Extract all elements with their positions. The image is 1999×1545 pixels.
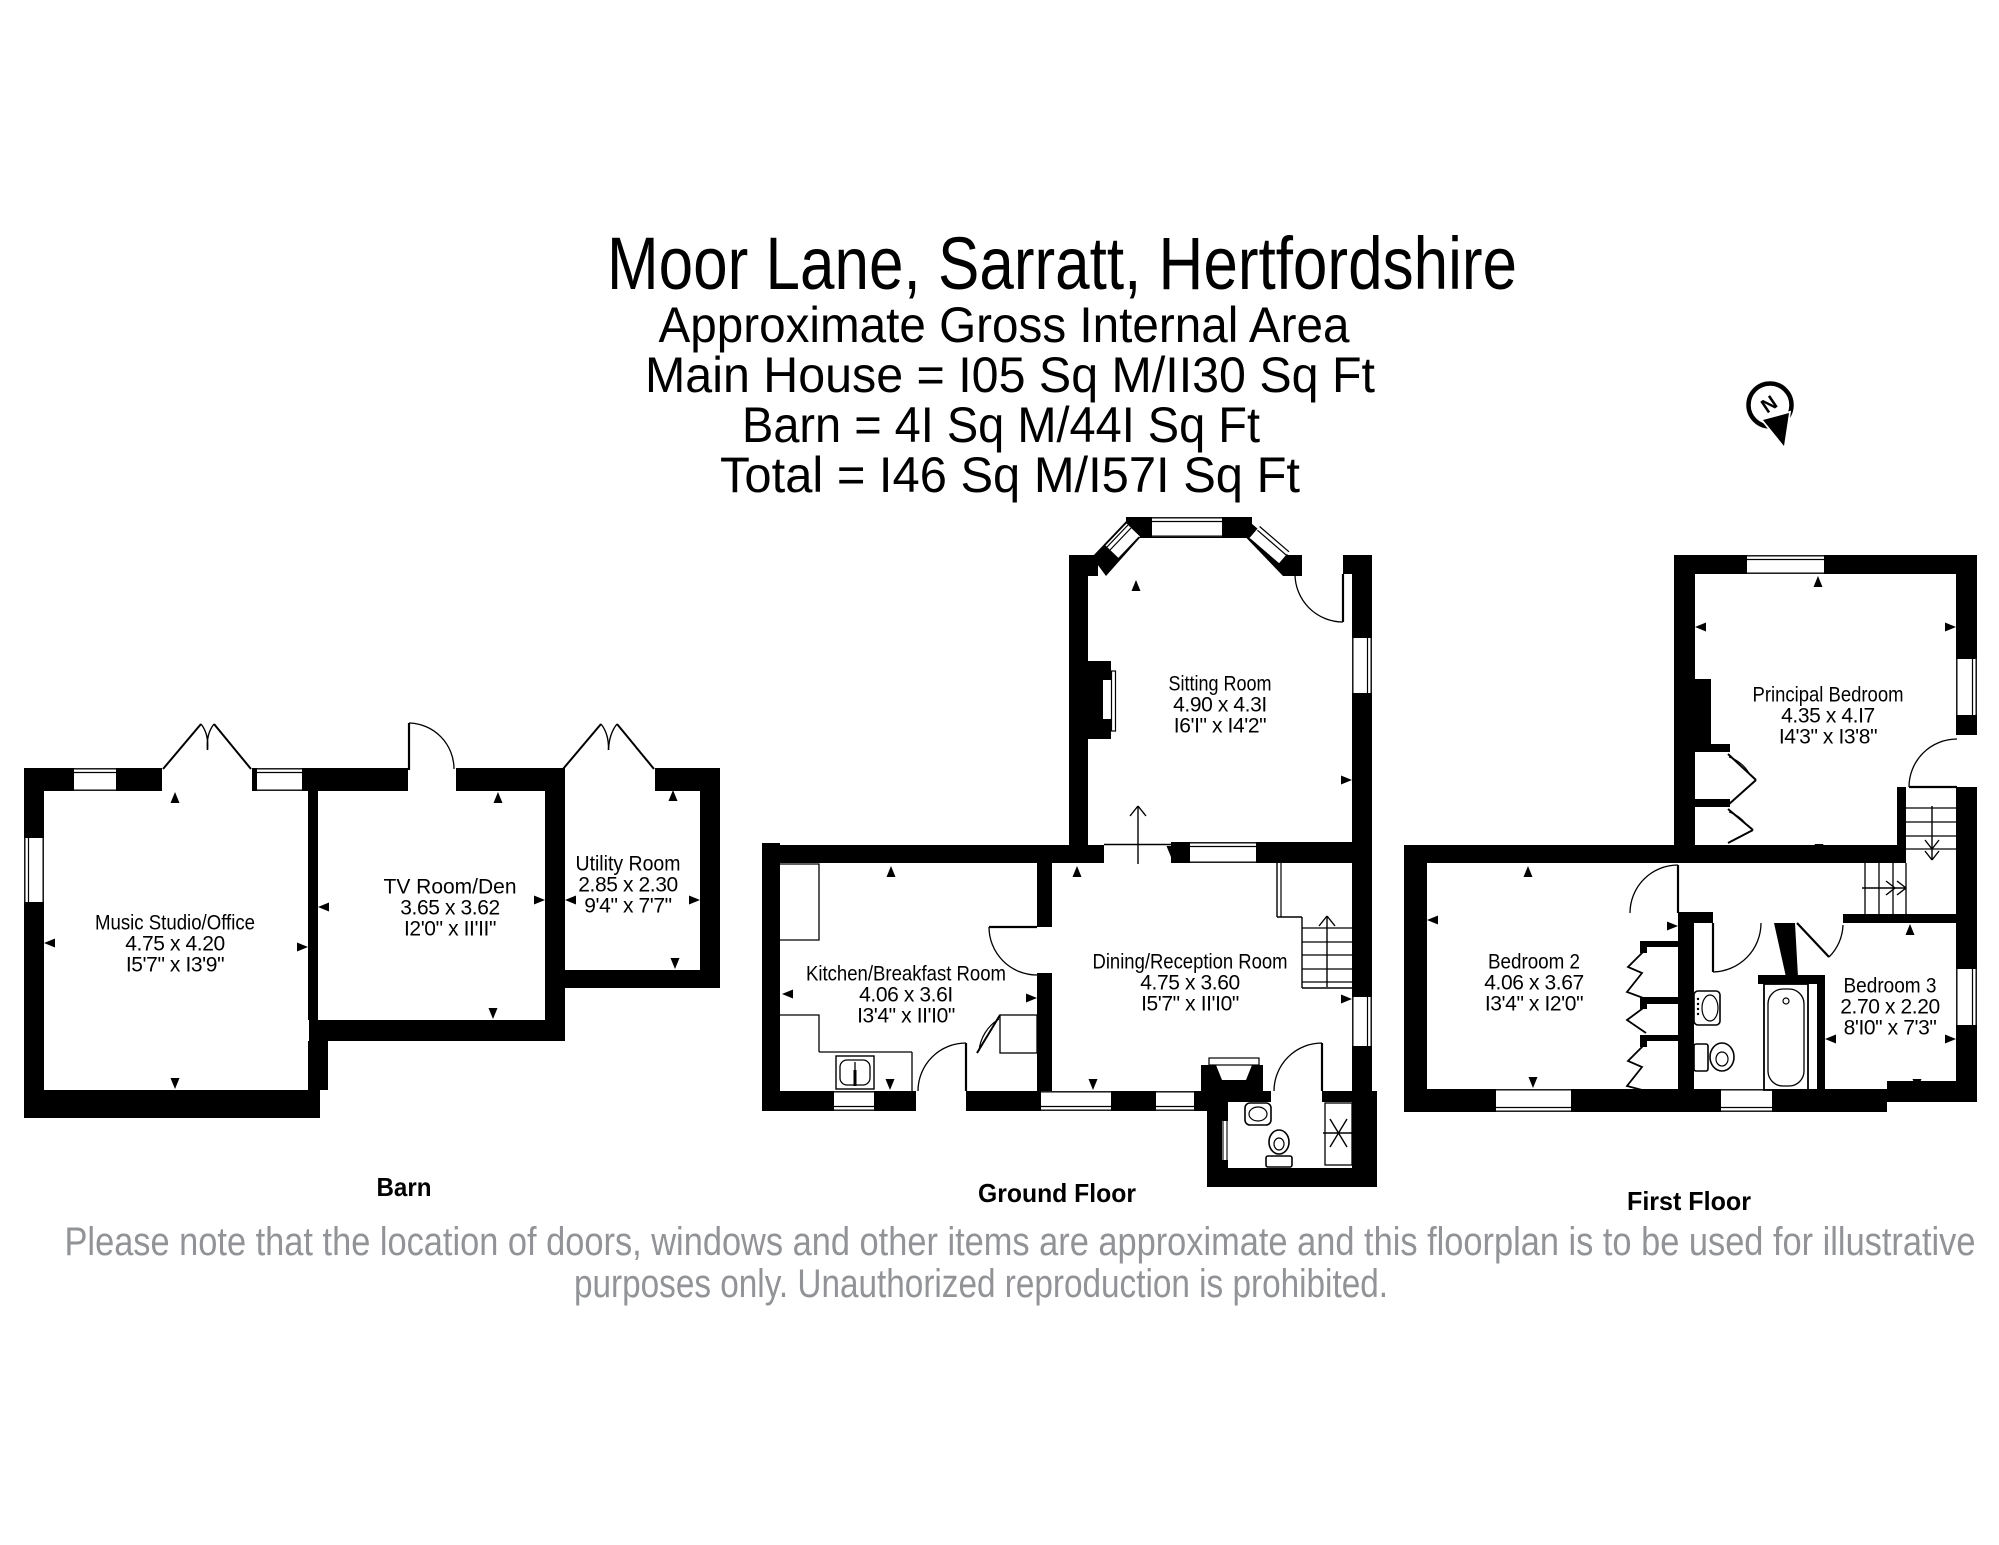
svg-text:3.65 x 3.62: 3.65 x 3.62	[400, 896, 500, 919]
svg-text:2.70 x 2.20: 2.70 x 2.20	[1840, 995, 1940, 1018]
svg-text:Utility Room: Utility Room	[576, 852, 681, 875]
svg-text:4.90 x 4.3I: 4.90 x 4.3I	[1173, 693, 1267, 716]
svg-text:Please note that the location: Please note that the location of doors, …	[65, 1220, 1976, 1264]
svg-text:Moor Lane, Sarratt, Hertfordsh: Moor Lane, Sarratt, Hertfordshire	[607, 222, 1517, 305]
svg-text:Main House = I05 Sq M/II30 Sq: Main House = I05 Sq M/II30 Sq Ft	[645, 347, 1375, 403]
svg-text:Barn: Barn	[377, 1172, 432, 1202]
svg-text:purposes only. Unauthorized re: purposes only. Unauthorized reproduction…	[574, 1262, 1388, 1306]
svg-text:Sitting Room: Sitting Room	[1169, 672, 1272, 695]
svg-text:4.75 x 4.20: 4.75 x 4.20	[125, 932, 225, 955]
svg-text:I6'I" x I4'2": I6'I" x I4'2"	[1174, 714, 1266, 737]
svg-text:Dining/Reception Room: Dining/Reception Room	[1093, 950, 1288, 973]
svg-text:4.06 x 3.67: 4.06 x 3.67	[1484, 971, 1584, 994]
svg-text:I3'4" x I2'0": I3'4" x I2'0"	[1485, 992, 1583, 1015]
svg-text:I5'7" x II'I0": I5'7" x II'I0"	[1141, 992, 1239, 1015]
svg-text:Approximate Gross Internal Are: Approximate Gross Internal Area	[659, 297, 1350, 353]
svg-text:4.06 x 3.6I: 4.06 x 3.6I	[859, 983, 953, 1006]
svg-text:4.75 x 3.60: 4.75 x 3.60	[1140, 971, 1240, 994]
svg-text:Bedroom 3: Bedroom 3	[1844, 974, 1937, 997]
svg-text:Kitchen/Breakfast Room: Kitchen/Breakfast Room	[806, 962, 1006, 985]
svg-text:I2'0" x II'II": I2'0" x II'II"	[404, 917, 496, 940]
svg-text:TV Room/Den: TV Room/Den	[384, 875, 517, 898]
svg-text:Ground Floor: Ground Floor	[978, 1178, 1136, 1208]
svg-text:First Floor: First Floor	[1627, 1186, 1751, 1216]
svg-text:9'4" x 7'7": 9'4" x 7'7"	[584, 894, 671, 917]
svg-text:Barn = 4I Sq M/44I Sq Ft: Barn = 4I Sq M/44I Sq Ft	[742, 397, 1260, 453]
svg-text:4.35 x 4.I7: 4.35 x 4.I7	[1781, 704, 1875, 727]
svg-text:2.85 x 2.30: 2.85 x 2.30	[578, 873, 678, 896]
svg-text:Total = I46 Sq M/I57I Sq Ft: Total = I46 Sq M/I57I Sq Ft	[720, 447, 1300, 503]
svg-text:8'I0" x 7'3": 8'I0" x 7'3"	[1844, 1016, 1937, 1039]
svg-text:Bedroom 2: Bedroom 2	[1488, 950, 1580, 973]
svg-text:I5'7" x I3'9": I5'7" x I3'9"	[126, 953, 224, 976]
svg-text:Principal Bedroom: Principal Bedroom	[1753, 683, 1904, 706]
svg-text:I4'3" x I3'8": I4'3" x I3'8"	[1779, 725, 1877, 748]
svg-text:I3'4" x II'I0": I3'4" x II'I0"	[857, 1004, 955, 1027]
svg-text:Music Studio/Office: Music Studio/Office	[95, 911, 255, 934]
